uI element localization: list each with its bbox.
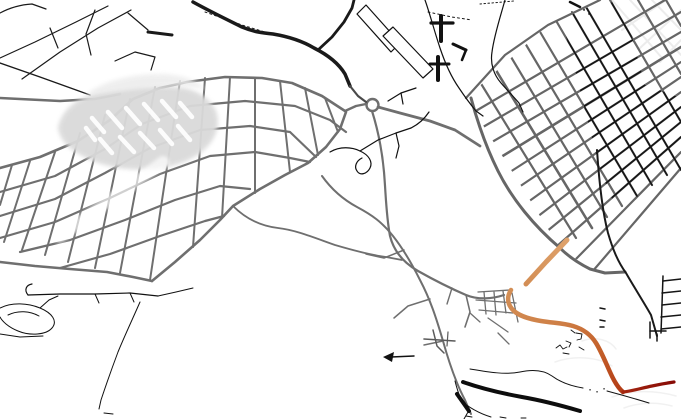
map-path — [465, 295, 470, 327]
map-path — [663, 279, 681, 281]
map-path — [624, 403, 672, 408]
map-path — [391, 356, 414, 357]
map-path — [383, 27, 433, 78]
map-path — [661, 315, 681, 317]
map-path — [491, 0, 523, 112]
map-path — [576, 333, 582, 340]
map-path — [662, 291, 681, 293]
map-path — [579, 347, 584, 350]
map-path — [0, 63, 90, 95]
map-path — [0, 304, 54, 334]
map-path — [233, 206, 402, 260]
overlay-blob — [58, 74, 218, 237]
map-path — [130, 293, 134, 302]
map-path — [58, 86, 218, 170]
map-path — [280, 81, 290, 172]
map-path — [480, 1, 514, 4]
map-canvas — [0, 0, 681, 419]
map-path — [383, 352, 394, 362]
map-path — [556, 345, 567, 349]
map-path — [566, 341, 571, 347]
map-path — [115, 52, 155, 70]
map-path — [428, 12, 472, 20]
map-path — [466, 416, 472, 417]
map-path — [28, 293, 158, 296]
map-path — [447, 288, 452, 304]
map-path — [522, 38, 622, 206]
map-path — [498, 333, 509, 344]
map-path — [305, 88, 318, 155]
map-path — [95, 294, 99, 303]
map-path — [8, 312, 39, 316]
map-path — [500, 417, 506, 418]
map-path — [424, 339, 455, 341]
map-path — [575, 152, 681, 260]
map-path — [463, 382, 580, 411]
map-path — [424, 341, 443, 345]
map-path — [350, 86, 366, 102]
map-path — [600, 308, 605, 309]
map-path — [570, 2, 580, 7]
map-path — [396, 133, 399, 158]
map-path — [318, 0, 354, 50]
map-path — [128, 13, 148, 30]
map-path — [345, 104, 366, 111]
map-path — [40, 296, 58, 308]
map-path — [508, 52, 607, 217]
map-path — [22, 10, 131, 79]
map-path — [662, 303, 681, 305]
route-segment-tail-red — [623, 382, 674, 392]
map-path — [563, 353, 569, 354]
south-black-details — [0, 284, 649, 419]
map-path — [571, 330, 575, 333]
map-path — [158, 288, 193, 296]
map-path — [26, 284, 32, 295]
highlighted-route — [508, 240, 674, 392]
map-path — [322, 176, 471, 414]
map-path — [583, 9, 585, 11]
east-street-grid-gray — [474, 0, 681, 272]
map-path — [0, 165, 12, 205]
map-path — [330, 148, 371, 174]
map-path — [447, 332, 448, 346]
map-path — [596, 391, 598, 393]
map-path — [148, 32, 172, 35]
map-path — [222, 77, 230, 218]
map-path — [453, 44, 466, 50]
map-path — [0, 262, 152, 281]
map-path — [470, 313, 480, 322]
map-path — [488, 318, 508, 332]
route-segment-north — [526, 240, 567, 284]
map-path — [470, 369, 583, 388]
map-path — [367, 99, 379, 111]
map-path — [589, 389, 591, 391]
map-viewport[interactable] — [0, 0, 681, 419]
map-path — [600, 320, 605, 321]
map-path — [104, 413, 113, 414]
map-path — [0, 4, 46, 13]
map-path — [661, 327, 681, 329]
map-path — [603, 388, 605, 390]
map-path — [394, 299, 430, 318]
map-path — [99, 302, 140, 409]
map-path — [588, 13, 590, 15]
map-path — [401, 93, 403, 104]
map-path — [462, 50, 466, 60]
map-path — [360, 128, 411, 151]
